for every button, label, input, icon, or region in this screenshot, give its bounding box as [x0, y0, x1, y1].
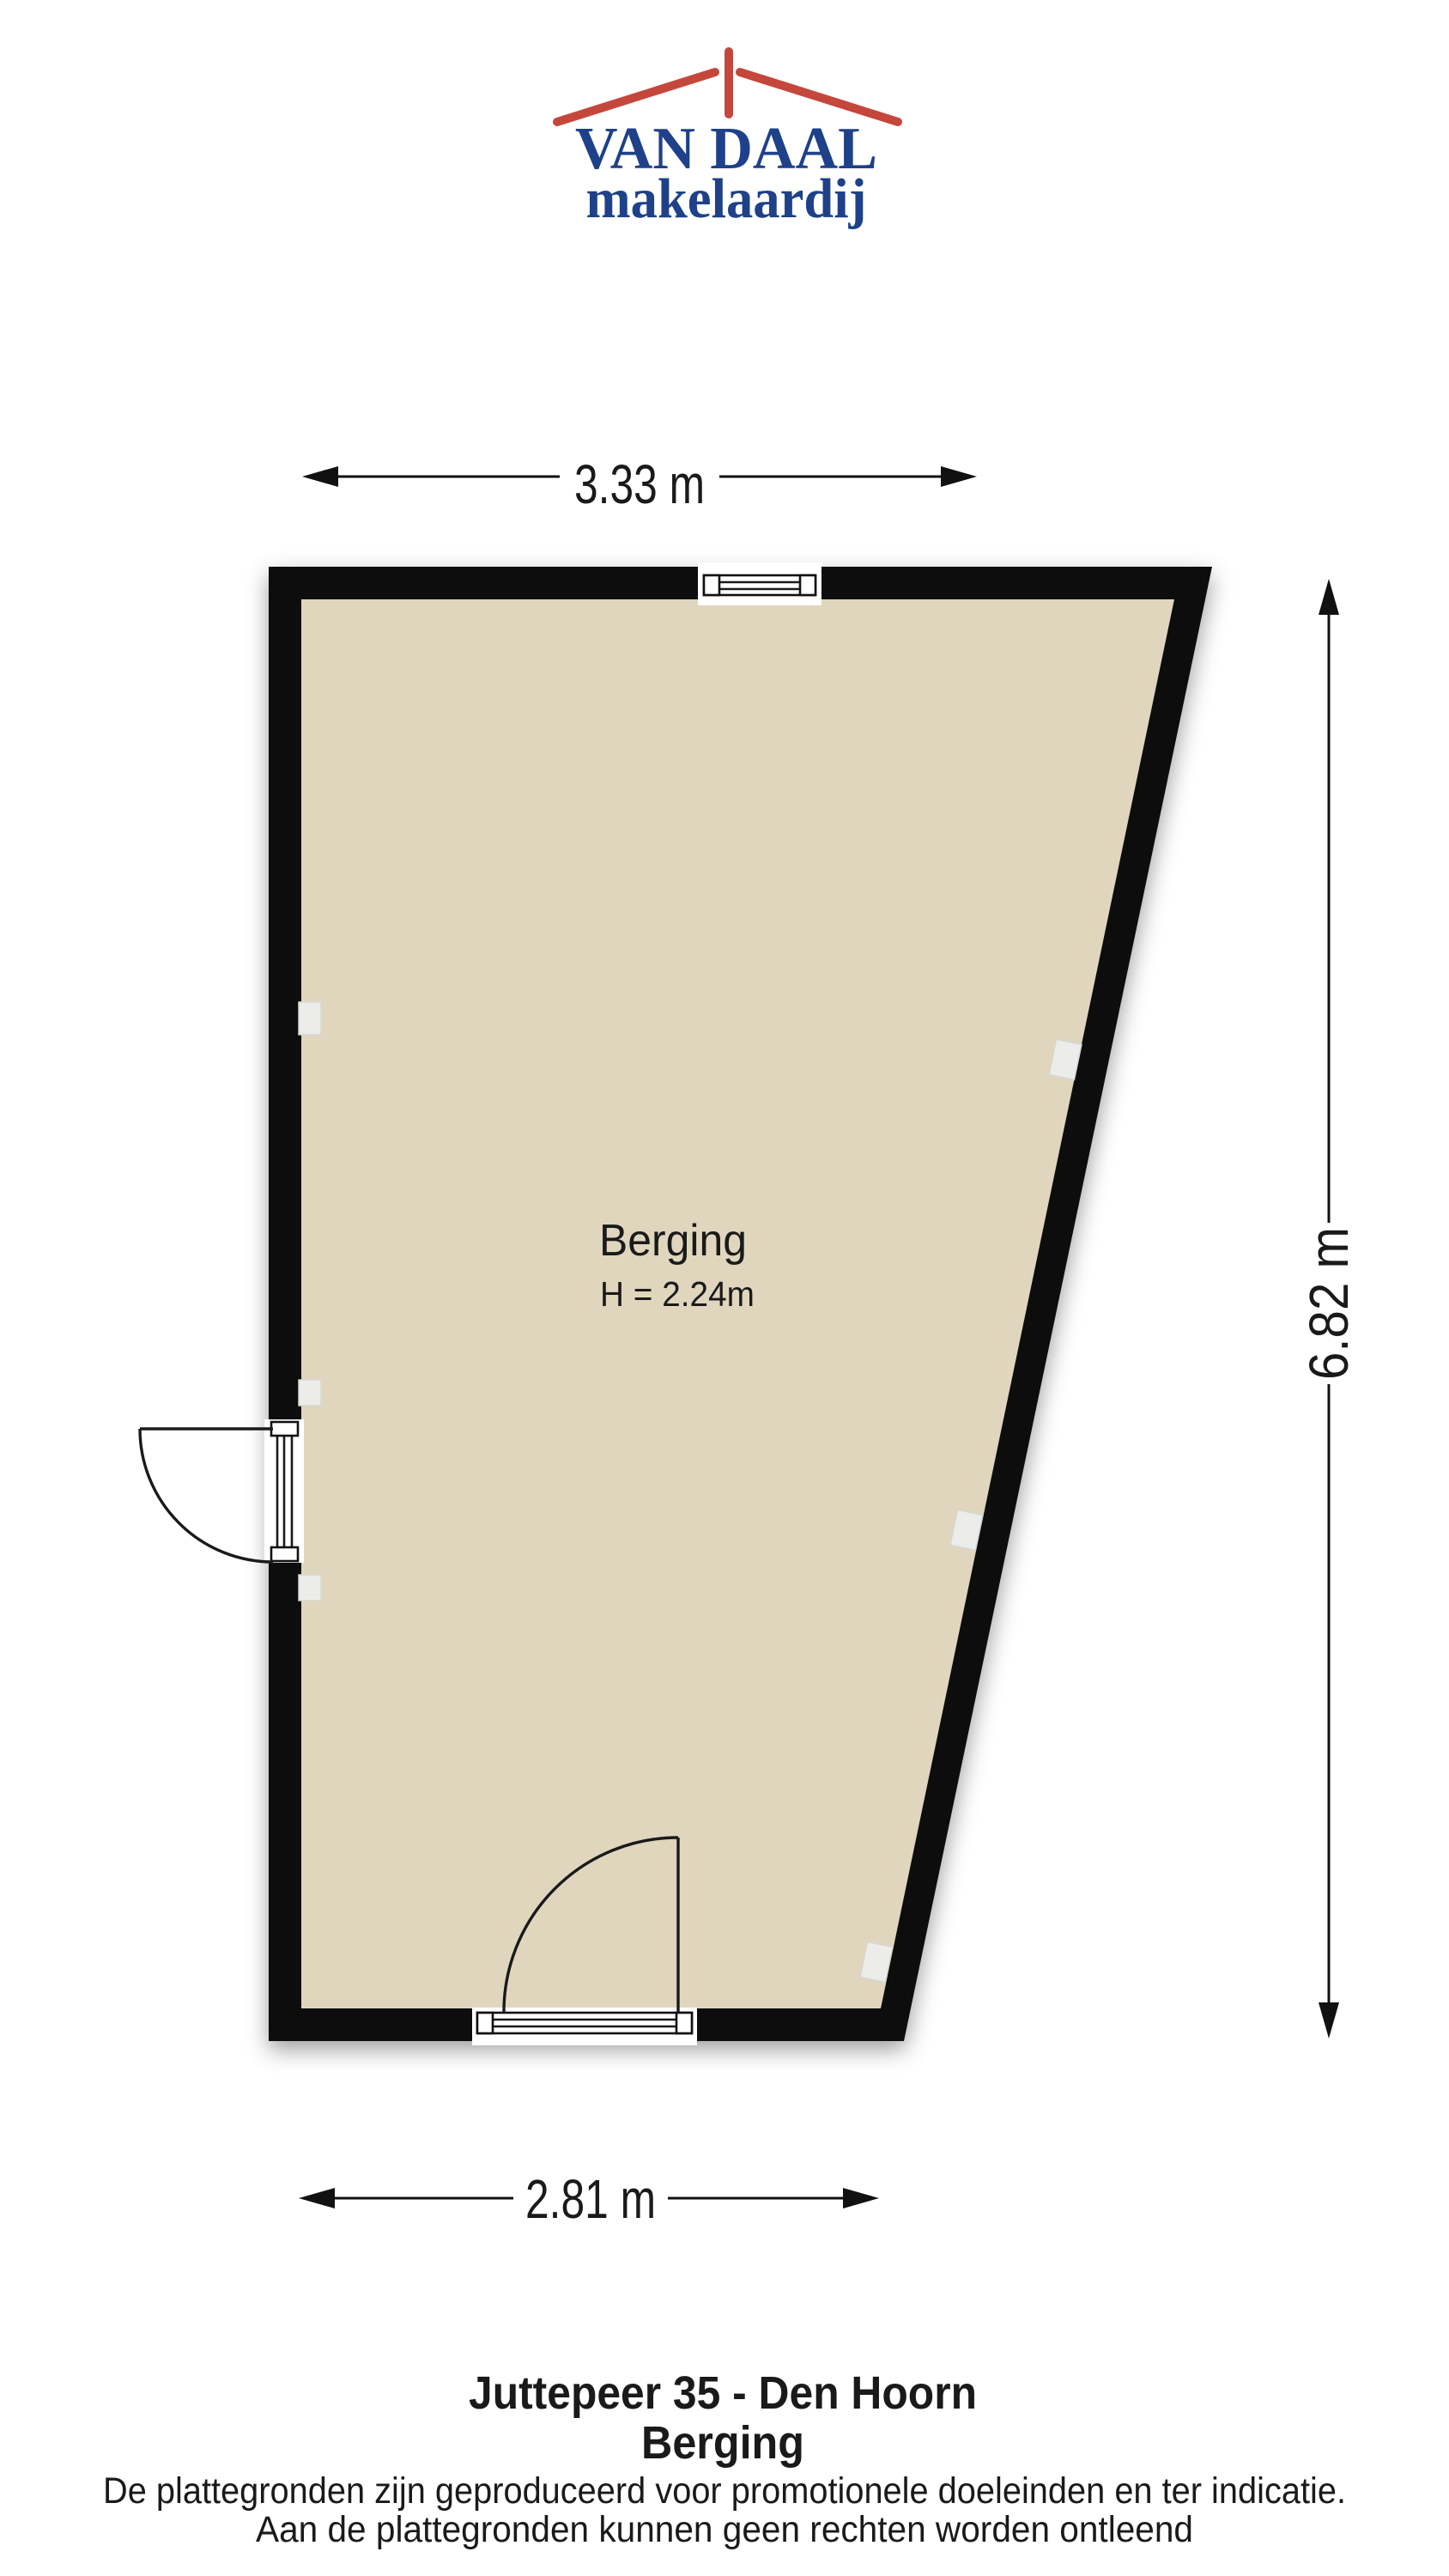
bottom-door-cap-right	[676, 2013, 692, 2033]
wall-fixture	[299, 1575, 321, 1601]
dimension-bottom-label: 2.81 m	[525, 2168, 656, 2230]
left-door-cap-top	[271, 1422, 298, 1436]
room-height-label: H = 2.24m	[600, 1274, 755, 1314]
wall-fixture	[299, 1002, 321, 1035]
logo: VAN DAAL makelaardij	[557, 52, 898, 230]
arrowhead-left-icon	[302, 466, 338, 487]
arrowhead-right-icon	[843, 2188, 879, 2208]
dimension-top: 3.33 m	[302, 453, 977, 515]
top-window-cap-right	[800, 575, 815, 595]
arrowhead-down-icon	[1319, 2002, 1339, 2038]
arrowhead-right-icon	[941, 466, 977, 487]
arrowhead-left-icon	[299, 2188, 335, 2208]
dimension-bottom: 2.81 m	[299, 2168, 879, 2230]
footer-disclaimer-line2: Aan de plattegronden kunnen geen rechten…	[256, 2509, 1193, 2550]
dimension-right-label: 6.82 m	[1298, 1227, 1360, 1380]
dimension-right: 6.82 m	[1298, 579, 1360, 2038]
footer-title-line2: Berging	[641, 2417, 804, 2469]
bottom-door-frame	[477, 2013, 692, 2033]
logo-roof-left-icon	[557, 72, 715, 122]
logo-roof-right-icon	[740, 72, 898, 122]
left-door-cap-bottom	[271, 1547, 298, 1561]
left-door-swing-arc	[140, 1429, 273, 1562]
floorplan-figure: VAN DAAL makelaardij	[0, 0, 1449, 2576]
top-window-cap-left	[704, 575, 719, 595]
floorplan: Berging H = 2.24m	[140, 562, 1212, 2045]
footer-disclaimer-line1: De plattegronden zijn geproduceerd voor …	[103, 2470, 1346, 2512]
dimension-top-label: 3.33 m	[574, 453, 705, 515]
footer-title-line1: Juttepeer 35 - Den Hoorn	[469, 2367, 977, 2419]
left-door	[140, 1419, 304, 1563]
top-window	[698, 562, 822, 605]
wall-fixture	[299, 1380, 321, 1406]
arrowhead-up-icon	[1319, 579, 1339, 615]
room-label: Berging	[599, 1216, 747, 1266]
top-window-frame	[704, 575, 815, 595]
footer: Juttepeer 35 - Den Hoorn Berging De plat…	[103, 2367, 1346, 2550]
logo-subtitle: makelaardij	[586, 167, 867, 230]
bottom-door-cap-left	[477, 2013, 493, 2033]
